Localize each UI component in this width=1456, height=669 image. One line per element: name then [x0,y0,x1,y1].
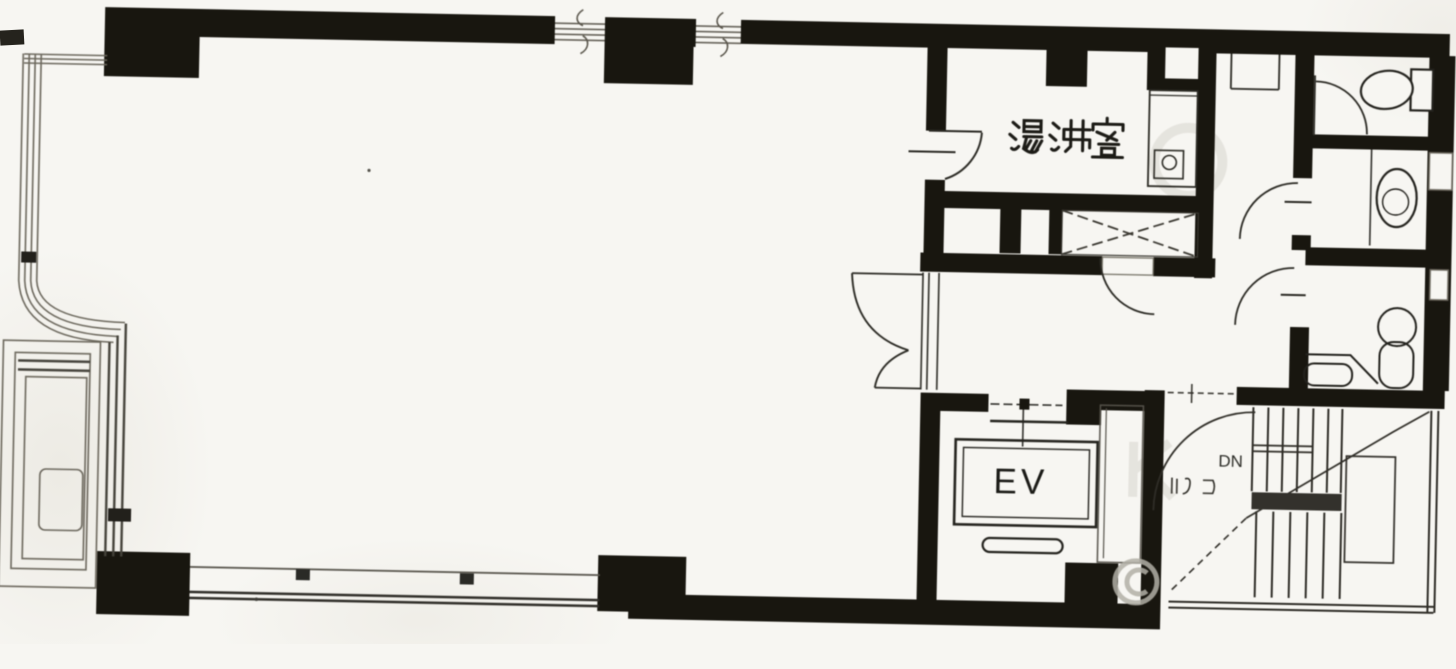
svg-text:DN: DN [1218,452,1243,471]
svg-text:EV: EV [993,462,1048,502]
